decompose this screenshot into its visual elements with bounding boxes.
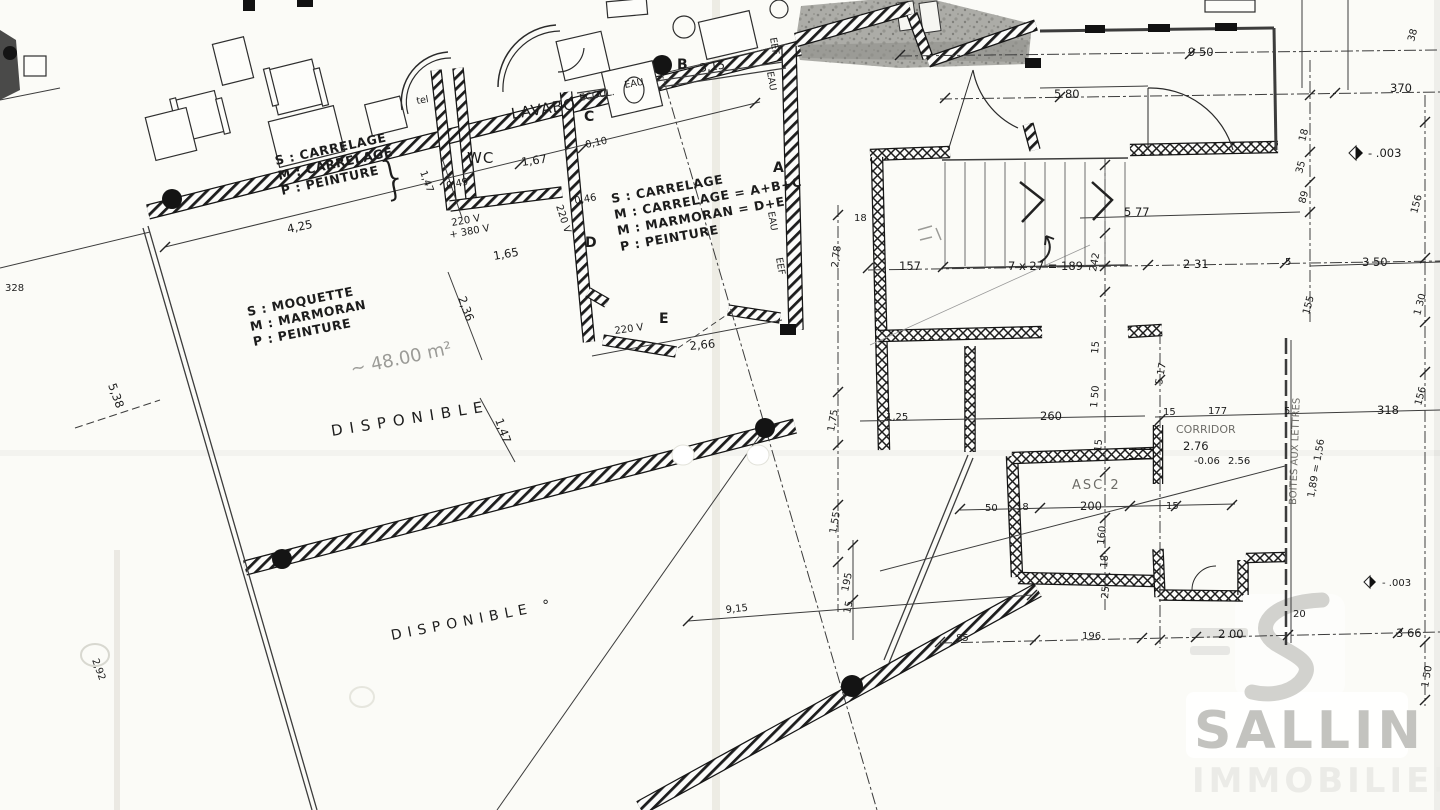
- wall-tick-block: [1025, 58, 1041, 68]
- annotation-220v-e: 220 V: [614, 322, 645, 337]
- watermark-brand-sub: IMMOBILIER: [1192, 761, 1440, 801]
- dim-577: 5 77: [1124, 205, 1150, 219]
- dim-200b: 2 00: [1218, 627, 1244, 641]
- paper-fold-line: [712, 0, 720, 810]
- annotation-220v-door: 220 V: [553, 204, 573, 235]
- dim-156a: 156: [1409, 193, 1425, 214]
- table-furniture: [212, 37, 253, 85]
- wall-crosshatched: [1128, 330, 1162, 332]
- area-note-pencil: ~ 48.00 m²: [349, 338, 454, 380]
- dim-15c: 15: [1166, 501, 1179, 512]
- annotation-eau-2: EAU: [765, 211, 779, 232]
- floor-plan-scan: SALLIN IMMOBILIER LAVABO WC tel CORRIDOR…: [0, 0, 1440, 810]
- annotation-stair-formula: 7 x 27 = 189: [1008, 259, 1083, 273]
- wall-hatched: [566, 92, 589, 342]
- punch-hole: [747, 445, 769, 465]
- dim-425: 4,25: [286, 217, 314, 236]
- floor-plan-svg: SALLIN IMMOBILIER LAVABO WC tel CORRIDOR…: [0, 0, 1440, 810]
- fixture-furniture: [1205, 0, 1255, 12]
- dimension-tick: [1420, 317, 1430, 327]
- dim-15e: 15: [842, 600, 855, 615]
- zone-label-e: E: [659, 311, 669, 327]
- dimension-line: [0, 232, 150, 268]
- annotation-level-top: - .003: [1368, 146, 1401, 160]
- dim-260: 260: [1040, 409, 1062, 423]
- dim-18a: 18: [854, 213, 867, 224]
- dim-15b: 15: [1093, 439, 1105, 453]
- dim-517: 5 17: [1154, 362, 1169, 386]
- annotation-corridor-height: 2.76: [1183, 439, 1209, 453]
- wall-crosshatched: [1246, 557, 1286, 558]
- curved-partition: [503, 31, 560, 92]
- room-label-available-2: DISPONIBLE °: [390, 596, 558, 644]
- dimension-tick: [938, 262, 948, 272]
- dim-328: 328: [5, 283, 24, 294]
- wall-tick-block: [1085, 25, 1105, 33]
- dim-167: 1,67: [520, 152, 547, 169]
- paper-stain: [350, 687, 374, 707]
- zone-label-c: C: [584, 109, 594, 125]
- annotation-level-bottom: - .003: [1382, 578, 1411, 589]
- wall-tick-block: [1215, 23, 1237, 31]
- level-marker-icon: [1370, 576, 1376, 588]
- dim-147a: 1,47: [417, 169, 435, 194]
- dim-18b: 18: [1297, 128, 1311, 143]
- room-label-tel: tel: [416, 94, 430, 107]
- room-label-wc: WC: [467, 149, 494, 167]
- wall-tick-block: [297, 0, 313, 7]
- armchair-furniture: [267, 59, 323, 115]
- room-label-corridor: CORRIDOR: [1176, 423, 1236, 436]
- watermark-bar: [1190, 646, 1230, 655]
- dim-15a: 15: [1163, 407, 1176, 418]
- curved-partition: [498, 25, 556, 87]
- dim-85: 85: [956, 633, 969, 644]
- scan-smudge: [0, 30, 20, 100]
- column-dot: [841, 675, 863, 697]
- punch-hole: [672, 445, 694, 465]
- dim-150b: 1 50: [1420, 665, 1435, 689]
- zone-label-a: A: [773, 160, 784, 176]
- wall-crosshatched: [870, 152, 950, 155]
- wall-crosshatched: [1130, 147, 1278, 150]
- dimension-tick: [750, 98, 760, 108]
- column-dot: [755, 418, 775, 438]
- wall-crosshatched: [877, 157, 884, 450]
- fixture-furniture: [606, 0, 647, 18]
- dimension-line: [942, 158, 1128, 160]
- wall-tick-block: [780, 324, 796, 335]
- dimension-line: [1274, 28, 1276, 150]
- dimension-tick: [940, 93, 950, 103]
- annotation-eau-1: EAU: [764, 71, 778, 92]
- dim-175: 1,75: [826, 409, 841, 433]
- dim-150a: 1 50: [1089, 385, 1102, 408]
- level-marker-icon: [1356, 146, 1363, 160]
- dim-292: 2,92: [89, 657, 107, 682]
- dimension-line: [868, 261, 1440, 270]
- dim-5b: 5: [1284, 406, 1290, 417]
- watermark-brand: SALLIN: [1194, 701, 1425, 761]
- door-swing-arc: [1192, 566, 1216, 590]
- dim-266: 2,66: [689, 336, 716, 353]
- zone-label-b: B: [677, 57, 688, 73]
- dim-125: 1,25: [886, 412, 908, 423]
- dim-366: 3 66: [1396, 626, 1422, 640]
- dimension-tick: [863, 263, 873, 273]
- dimension-tick: [1143, 260, 1153, 270]
- pencil-scribble: [918, 226, 941, 240]
- scan-edge-shadow: [1434, 0, 1440, 810]
- wall-hatched: [640, 590, 1038, 808]
- dim-915: 9,15: [725, 603, 748, 616]
- level-marker-icon: [1364, 576, 1370, 588]
- dimension-line: [1080, 212, 1300, 218]
- column-dot: [162, 189, 182, 209]
- annotation-mail-note: 1,89 = 1,56: [1306, 438, 1327, 498]
- dimension-tick: [1305, 177, 1315, 187]
- dim-242: 242: [1088, 252, 1102, 273]
- wall-tick-block: [243, 0, 255, 11]
- scan-artifacts-top: [81, 445, 769, 707]
- dim-130: 1 30: [1412, 292, 1428, 316]
- annotation-corridor-level1: -0.06: [1194, 456, 1220, 467]
- dim-35: 35: [1294, 160, 1308, 175]
- stair-direction-arrow: [1092, 182, 1112, 220]
- dim-89: 89: [1297, 190, 1311, 205]
- room-label-available-1: DISPONIBLE: [330, 397, 491, 440]
- level-marker-icon: [1349, 146, 1356, 160]
- dim-156b: 156: [1413, 385, 1429, 406]
- column-dot: [3, 46, 17, 60]
- annotation-corridor-level2: 2.56: [1228, 456, 1250, 467]
- fixture-furniture: [24, 56, 46, 76]
- dimension-tick: [955, 504, 965, 514]
- dim-200a: 200: [1080, 499, 1102, 513]
- dim-155b: 1,55: [828, 511, 843, 535]
- legend-top-brace: }: [373, 148, 413, 207]
- dim-25: 25: [1100, 586, 1112, 600]
- dimension-tick: [1330, 88, 1340, 98]
- dim-18d: 18: [1016, 502, 1029, 513]
- wall-tick-block: [1148, 24, 1170, 32]
- wall-crosshatched: [1018, 578, 1155, 581]
- dimension-tick: [160, 242, 170, 252]
- dim-236: 2,36: [455, 294, 477, 323]
- dim-38: 38: [1406, 28, 1420, 43]
- dim-157: 157: [899, 259, 921, 273]
- wall-crosshatched: [1159, 595, 1243, 596]
- dim-165: 1,65: [492, 245, 520, 263]
- door-swing-arc: [973, 70, 1018, 128]
- fixture-furniture: [698, 11, 757, 60]
- wall-crosshatched: [1012, 456, 1017, 577]
- room-label-elevator: ASC 2: [1072, 478, 1121, 493]
- dim-950: 9 50: [1188, 45, 1214, 59]
- door-leaf: [948, 70, 973, 151]
- dim-20: 20: [1293, 609, 1306, 620]
- dim-370: 370: [1390, 81, 1412, 95]
- dim-50: 50: [985, 503, 998, 514]
- dim-18c: 18: [1099, 555, 1111, 569]
- dim-010: 0,10: [584, 136, 608, 151]
- dimension-tick: [1420, 695, 1430, 705]
- annotation-eef-2: EEF: [773, 257, 787, 276]
- dim-278: 2,78: [830, 245, 844, 268]
- wall-crosshatched: [878, 332, 1042, 336]
- dim-155a: 155: [1301, 294, 1317, 315]
- dimension-tick: [1227, 500, 1237, 510]
- dim-538: 5,38: [105, 381, 127, 410]
- column-dot: [272, 549, 292, 569]
- dim-231: 2 31: [1183, 257, 1209, 271]
- dim-15d: 15: [1090, 341, 1102, 355]
- dim-580: 5 80: [1054, 87, 1080, 101]
- dim-5a: 5: [1285, 257, 1291, 268]
- paper-fold-line: [114, 550, 120, 810]
- zone-label-d: D: [585, 235, 597, 251]
- dim-350: 3 50: [1362, 255, 1388, 269]
- dim-160: 160: [1096, 525, 1109, 545]
- door-swing-arc: [1148, 88, 1233, 150]
- dimension-tick: [1030, 635, 1040, 645]
- fixture-basin: [770, 0, 788, 18]
- dim-147b: 1,47: [492, 416, 514, 445]
- fixture-basin: [673, 16, 695, 38]
- stair-direction-arrow: [1020, 182, 1043, 222]
- dim-318: 318: [1377, 403, 1399, 417]
- dim-177: 177: [1208, 406, 1227, 417]
- dim-196: 196: [1082, 631, 1101, 642]
